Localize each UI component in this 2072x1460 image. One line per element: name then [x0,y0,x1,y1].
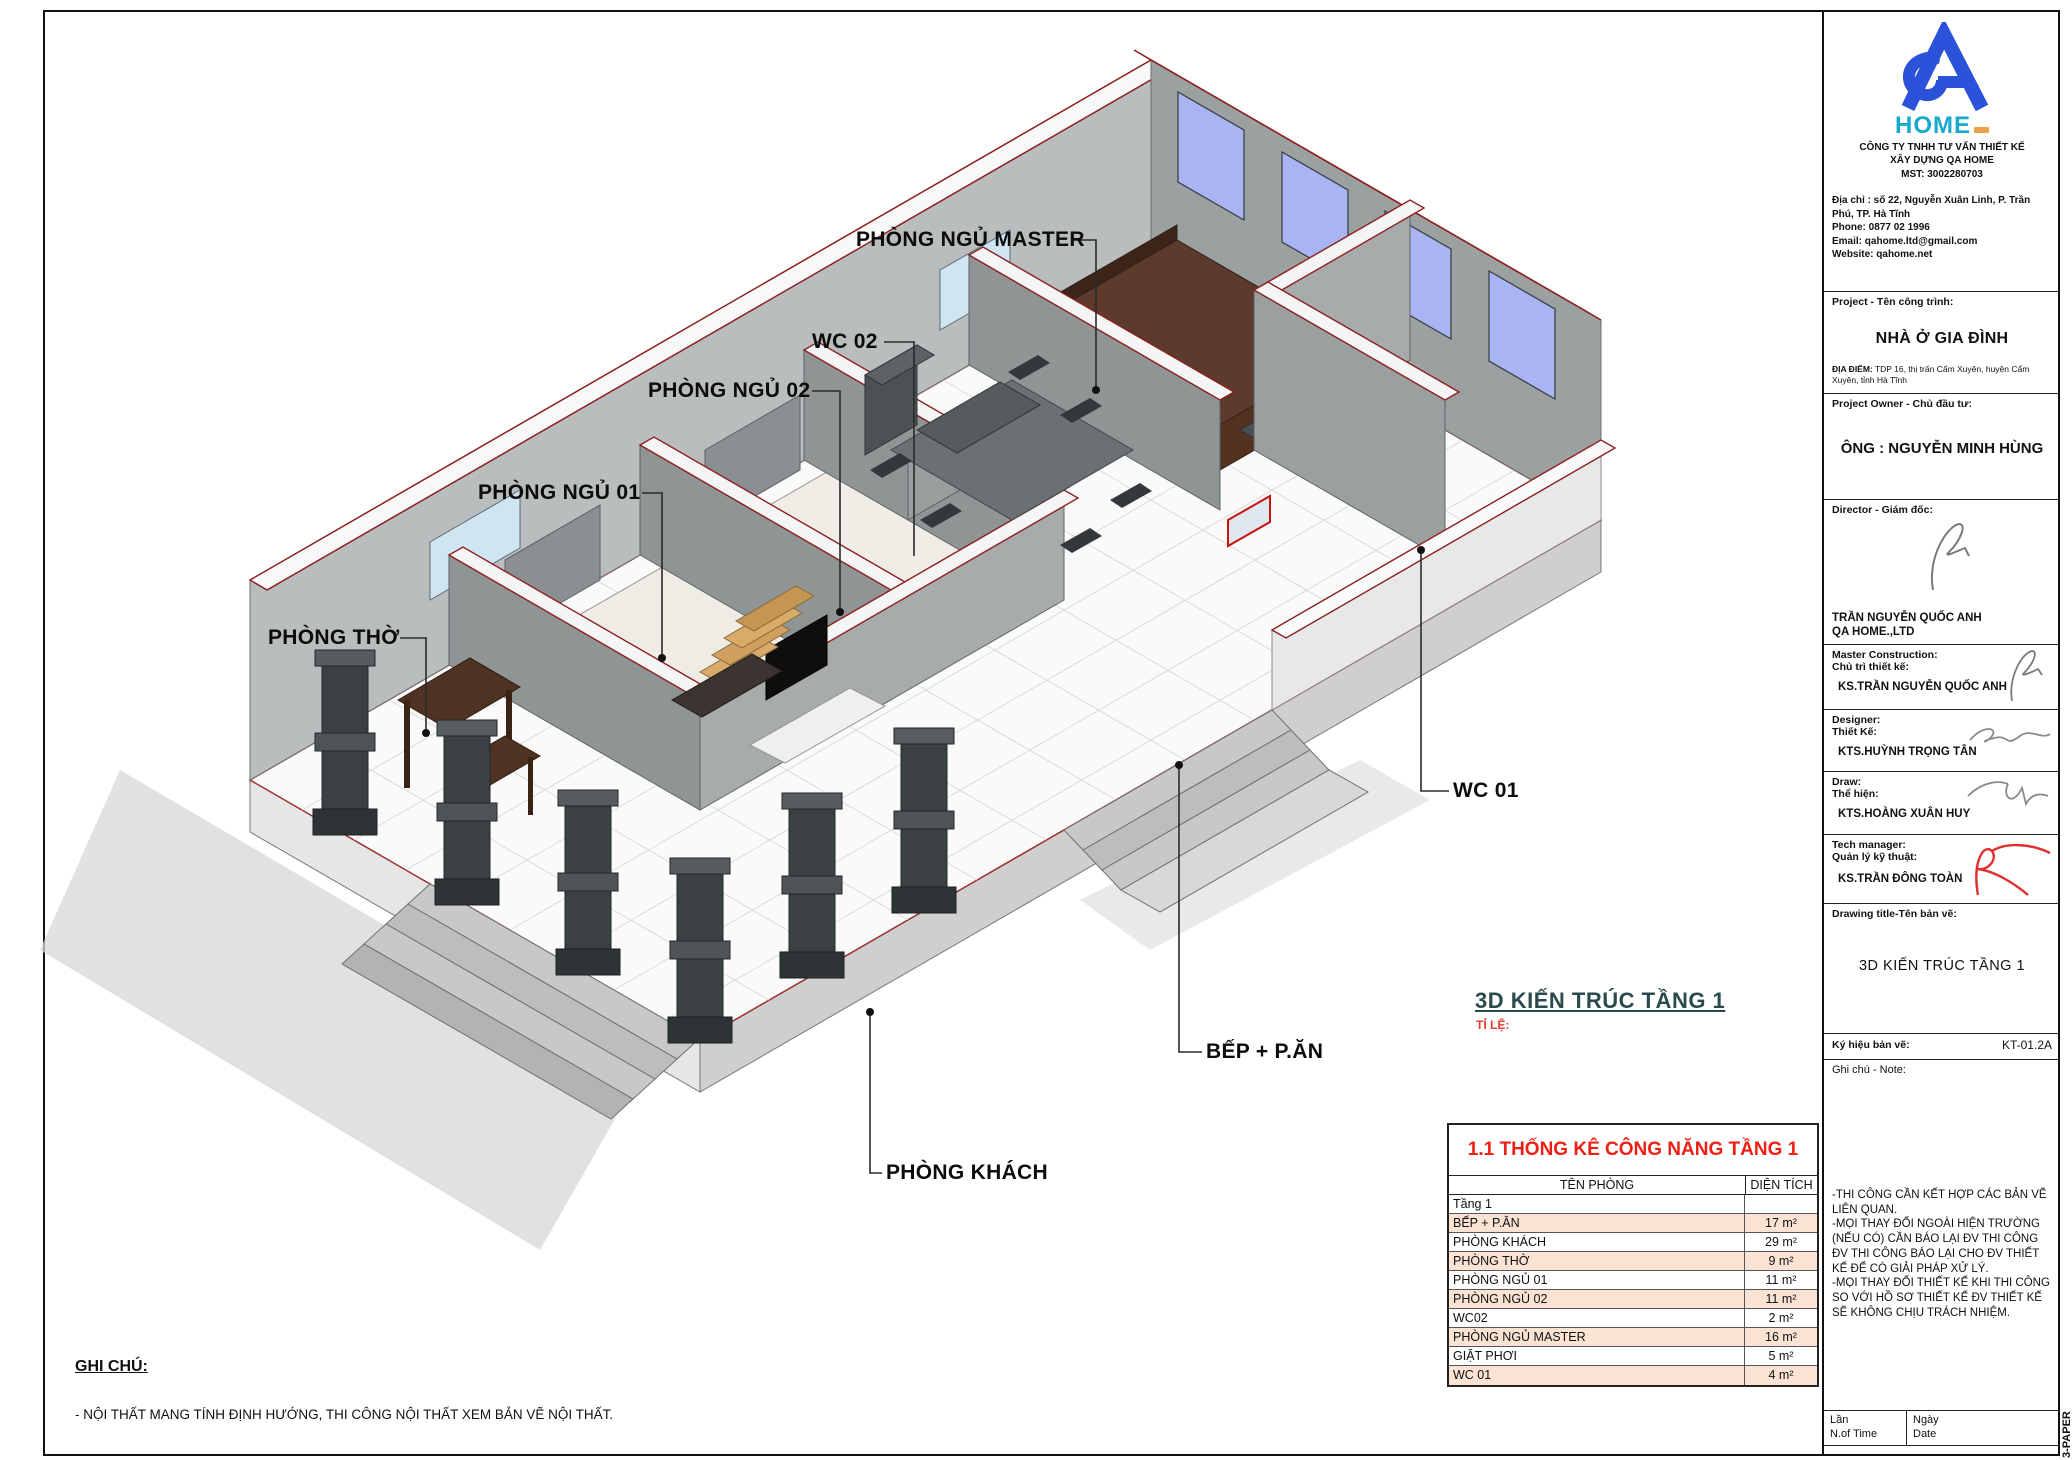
qa-home-logo: HOME [1832,22,2052,138]
room-label-phong-ngu-01: PHÒNG NGỦ 01 [478,481,640,505]
paper-size-label: 3-PAPER [2061,1411,2072,1458]
table-row: PHÒNG THỜ9 m² [1449,1252,1817,1271]
paint-roller-icon [1974,127,1989,133]
signature-director [1919,518,1989,596]
table-header: TÊN PHÒNG DIỆN TÍCH [1449,1176,1817,1195]
room-label-wc02: WC 02 [812,330,878,354]
director-company: QA HOME.,LTD [1832,626,2052,638]
section-company: HOME CÔNG TY TNHH TƯ VẤN THIẾT KẾ XÂY DỰ… [1824,10,2060,292]
owner-name: ÔNG : NGUYỄN MINH HÙNG [1832,440,2052,457]
table-row: PHÒNG KHÁCH29 m² [1449,1233,1817,1252]
drawing-title-label: Drawing title-Tên bản vẽ: [1832,908,2052,920]
room-label-phong-ngu-master: PHÒNG NGỦ MASTER [856,228,1085,252]
qa-monogram-icon [1890,22,1994,114]
project-location: ĐỊA ĐIỂM: TDP 16, thị trấn Cẩm Xuyên, hu… [1832,364,2052,386]
company-website: Website: qahome.net [1832,248,2052,262]
signature-draw [1964,774,2054,818]
title-block: HOME CÔNG TY TNHH TƯ VẤN THIẾT KẾ XÂY DỰ… [1822,10,2060,1456]
company-phone: Phone: 0877 02 1996 [1832,221,2052,235]
drawing-title-value: 3D KIẾN TRÚC TẦNG 1 [1832,958,2052,974]
ghi-chu-body: - NỘI THẤT MANG TÍNH ĐỊNH HƯỚNG, THI CÔN… [75,1406,695,1424]
section-tech-manager: Tech manager: Quản lý kỹ thuật: KS.TRẦN … [1824,835,2060,904]
room-label-phong-ngu-02: PHÒNG NGỦ 02 [648,379,810,403]
col-header-area: DIỆN TÍCH [1746,1176,1817,1194]
table-row: WC022 m² [1449,1309,1817,1328]
table-title: 1.1 THỐNG KÊ CÔNG NĂNG TẦNG 1 [1449,1125,1817,1176]
col-header-room: TÊN PHÒNG [1449,1176,1746,1194]
section-owner: Project Owner - Chủ đầu tư: ÔNG : NGUYỄN… [1824,394,2060,500]
ghi-chu-heading: GHI CHÚ: [75,1358,148,1376]
project-name: NHÀ Ở GIA ĐÌNH [1832,330,2052,348]
section-project: Project - Tên công trình: NHÀ Ở GIA ĐÌNH… [1824,292,2060,394]
revision-row: Lần N.of Time Ngày Date [1824,1410,2060,1456]
company-mst: MST: 3002280703 [1832,169,2052,180]
section-draw: Draw: Thể hiện: KTS.HOÀNG XUÂN HUY [1824,772,2060,835]
room-label-wc01: WC 01 [1453,779,1519,803]
section-drawing-title: Drawing title-Tên bản vẽ: 3D KIẾN TRÚC T… [1824,904,2060,1034]
room-label-bep: BẾP + P.ĂN [1206,1040,1323,1064]
revision-times-cell: Lần N.of Time [1824,1411,1907,1446]
signature-tech-manager [1962,837,2056,899]
table-row: GIẶT PHƠI5 m² [1449,1347,1817,1366]
note-body: -THI CÔNG CẦN KẾT HỢP CÁC BẢN VẼ LIÊN QU… [1832,1188,2052,1320]
room-label-phong-tho: PHÒNG THỜ [268,626,399,650]
revision-date-cell: Ngày Date [1907,1411,2060,1446]
company-name-line1: CÔNG TY TNHH TƯ VẤN THIẾT KẾ [1832,142,2052,155]
table-row: BẾP + P.ĂN17 m² [1449,1214,1817,1233]
section-director: Director - Giám đốc: TRẦN NGUYỄN QUỐC AN… [1824,500,2060,645]
company-name-line2: XÂY DỰNG QA HOME [1832,155,2052,168]
section-master-construction: Master Construction: Chủ trì thiết kế: K… [1824,645,2060,710]
section-designer: Designer: Thiết Kế: KTS.HUỲNH TRỌNG TÂN [1824,710,2060,772]
logo-home-text: HOME [1895,114,1971,138]
company-address: Địa chỉ : số 22, Nguyễn Xuân Linh, P. Tr… [1832,194,2052,221]
symbol-value: KT-01.2A [2002,1038,2052,1052]
table-row: PHÒNG NGỦ 0211 m² [1449,1290,1817,1309]
view-scale-label: TỈ LỆ: [1476,1018,1509,1032]
section-symbol: Ký hiệu bản vẽ: KT-01.2A [1824,1034,2060,1060]
view-title: 3D KIẾN TRÚC TẦNG 1 [1475,988,1725,1014]
room-label-phong-khach: PHÒNG KHÁCH [886,1161,1048,1185]
drawing-sheet: PHÒNG NGỦ MASTER WC 02 PHÒNG NGỦ 02 PHÒN… [0,0,2072,1460]
table-row: WC 014 m² [1449,1366,1817,1385]
director-name: TRẦN NGUYỄN QUỐC ANH [1832,612,2052,624]
section-note: Ghi chú - Note: -THI CÔNG CẦN KẾT HỢP CÁ… [1824,1060,2060,1412]
area-statistics-table: 1.1 THỐNG KÊ CÔNG NĂNG TẦNG 1 TÊN PHÒNG … [1447,1123,1819,1387]
table-row: Tầng 1 [1449,1195,1817,1214]
project-label: Project - Tên công trình: [1832,296,2052,308]
table-row: PHÒNG NGỦ MASTER16 m² [1449,1328,1817,1347]
note-label: Ghi chú - Note: [1832,1064,2052,1076]
company-email: Email: qahome.ltd@gmail.com [1832,235,2052,249]
owner-label: Project Owner - Chủ đầu tư: [1832,398,2052,410]
symbol-label: Ký hiệu bản vẽ: [1832,1039,1910,1051]
signature-master-construction [2002,647,2054,705]
signature-designer [1964,714,2054,754]
table-row: PHÒNG NGỦ 0111 m² [1449,1271,1817,1290]
director-label: Director - Giám đốc: [1832,504,2052,516]
